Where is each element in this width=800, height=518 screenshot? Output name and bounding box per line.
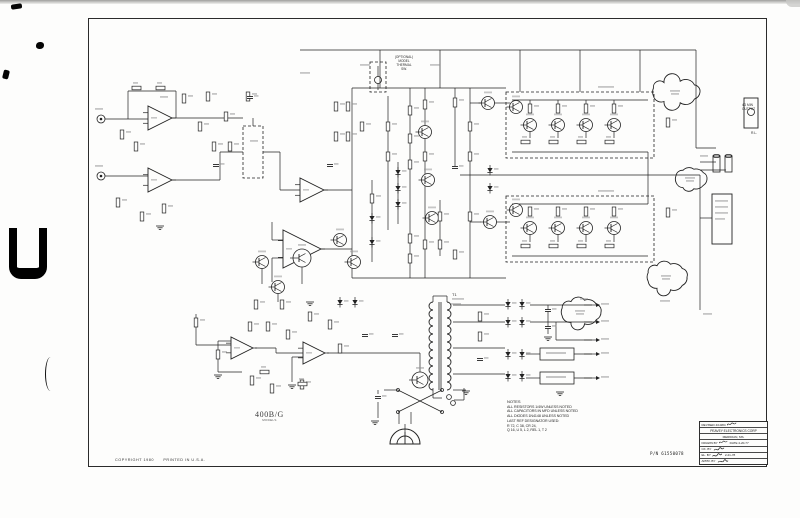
resistor-symbol <box>182 94 186 103</box>
label-smudge <box>550 136 555 138</box>
label-smudge <box>474 153 479 155</box>
label-smudge <box>306 352 312 354</box>
resistor-symbol <box>521 244 530 248</box>
label-smudge <box>601 320 609 322</box>
label-smudge <box>578 136 583 138</box>
label-smudge <box>486 211 494 213</box>
label-smudge <box>366 123 371 125</box>
resistor-symbol <box>468 212 472 221</box>
diode-symbol <box>395 186 400 191</box>
label-smudge <box>715 218 725 220</box>
resistor-symbol <box>423 100 427 109</box>
label-smudge <box>526 114 534 116</box>
resistor-symbol <box>408 160 412 169</box>
diode-symbol <box>487 168 492 173</box>
label-smudge <box>382 395 387 397</box>
resistor-symbol <box>216 350 220 359</box>
label-smudge <box>95 108 103 110</box>
resistor-symbol <box>370 194 374 203</box>
label-smudge <box>303 189 309 191</box>
resistor-symbol <box>334 132 338 141</box>
label-smudge <box>220 163 225 165</box>
label-smudge <box>494 186 499 188</box>
cloud-revision-mark <box>675 168 707 192</box>
diode-symbol <box>505 320 510 325</box>
resistor-symbol <box>386 122 390 131</box>
label-smudge <box>416 367 424 369</box>
optional-line: SW. <box>388 68 420 72</box>
label-smudge <box>672 209 677 211</box>
label-smudge <box>703 313 712 315</box>
label-smudge <box>212 93 217 95</box>
label-smudge <box>575 310 585 312</box>
diode-symbol <box>505 374 510 379</box>
label-smudge <box>392 123 397 125</box>
label-smudge <box>606 136 611 138</box>
diode-symbol <box>352 300 357 305</box>
label-smudge <box>685 177 695 179</box>
titleblock-checked-by: CK. BY <box>702 447 712 451</box>
label-smudge <box>299 378 304 380</box>
label-smudge <box>314 313 319 315</box>
label-smudge <box>160 96 168 98</box>
resistor-symbol <box>521 140 530 144</box>
label-smudge <box>494 168 499 170</box>
resistor-symbol <box>423 240 427 249</box>
label-smudge <box>254 95 259 97</box>
label-smudge <box>344 345 349 347</box>
diode-symbol <box>395 170 400 175</box>
label-smudge <box>552 325 557 327</box>
resistor-symbol <box>408 234 412 243</box>
label-smudge <box>421 121 429 123</box>
titleblock-drawn-date: DATE 4-20-77 <box>730 441 749 445</box>
label-smudge <box>376 216 381 218</box>
label-smudge <box>146 213 151 215</box>
label-smudge <box>459 165 464 167</box>
label-smudge <box>484 92 492 94</box>
label-smudge <box>444 213 449 215</box>
label-smudge <box>618 105 623 107</box>
label-smudge <box>261 366 266 368</box>
label-smudge <box>474 123 479 125</box>
label-smudge <box>562 208 567 210</box>
resistor-symbol <box>438 212 442 221</box>
label-smudge <box>661 275 671 277</box>
resistor-symbol <box>194 318 198 327</box>
label-smudge <box>122 199 127 201</box>
resistor-symbol <box>120 130 124 139</box>
resistor-symbol <box>584 207 588 216</box>
label-smudge <box>157 82 162 84</box>
label-smudge <box>402 170 407 172</box>
label-smudge <box>429 241 434 243</box>
resistor-symbol <box>556 207 560 216</box>
label-smudge <box>424 169 432 171</box>
diode-symbol <box>369 216 374 221</box>
optional-annotation: (OPTIONAL) MODEL THERMAL SW. <box>388 56 420 72</box>
diode-symbol <box>519 352 524 357</box>
label-smudge <box>414 235 419 237</box>
resistor-symbol <box>134 142 138 151</box>
resistor-symbol <box>438 240 442 249</box>
output-jack-label-line: OUTPUT <box>742 107 768 111</box>
label-smudge <box>429 101 434 103</box>
label-smudge <box>526 302 531 304</box>
title-block: REVISED 4/10/84 PEAVEY ELECTRONICS CORP … <box>699 421 768 465</box>
speaker-jack-symbol <box>713 156 720 172</box>
fuse-symbol <box>451 401 456 406</box>
label-smudge <box>414 107 419 109</box>
label-smudge <box>598 190 614 192</box>
label-smudge <box>522 136 527 138</box>
resistor-symbol <box>408 254 412 263</box>
titleblock-approved-row: APPR. BY <box>700 458 767 464</box>
resistor-symbol <box>453 250 457 259</box>
resistor-symbol <box>248 322 252 331</box>
label-smudge <box>344 300 349 302</box>
input-jack-symbol <box>100 175 103 178</box>
resistor-symbol <box>212 142 216 151</box>
label-smudge <box>715 200 728 202</box>
resistor-symbol <box>666 208 670 217</box>
label-smudge <box>550 240 555 242</box>
cloud-revision-mark <box>653 74 700 111</box>
transformer-coil <box>447 302 451 390</box>
diode-symbol <box>337 300 342 305</box>
resistor-symbol <box>528 104 532 113</box>
resistor-symbol <box>338 344 342 353</box>
resistor-symbol <box>132 86 141 90</box>
resistor-symbol <box>334 102 338 111</box>
voltage-arrow <box>596 338 600 342</box>
label-smudge <box>484 357 489 359</box>
label-smudge <box>512 352 517 354</box>
part-number: P/N 61550078 <box>650 451 684 456</box>
diode-symbol <box>395 202 400 207</box>
resistor-symbol <box>270 384 274 393</box>
label-smudge <box>350 251 358 253</box>
label-smudge <box>546 352 566 354</box>
dashed-enclosure <box>243 126 263 178</box>
label-smudge <box>452 298 464 300</box>
resistor-symbol <box>140 212 144 221</box>
resistor-symbol <box>162 204 166 213</box>
label-smudge <box>459 99 464 101</box>
label-smudge <box>484 313 489 315</box>
resistor-symbol <box>478 332 482 341</box>
label-smudge <box>670 90 680 92</box>
resistor-symbol <box>116 198 120 207</box>
label-smudge <box>484 333 489 335</box>
resistor-symbol <box>286 330 290 339</box>
resistor-symbol <box>612 104 616 113</box>
resistor-symbol <box>584 104 588 113</box>
label-smudge <box>151 117 157 119</box>
label-smudge <box>272 323 277 325</box>
label-smudge <box>582 114 590 116</box>
label-smudge <box>590 105 595 107</box>
resistor-symbol <box>408 134 412 143</box>
label-smudge <box>340 133 345 135</box>
label-smudge <box>188 95 193 97</box>
label-smudge <box>250 140 258 142</box>
resistor-symbol <box>156 86 165 90</box>
label-smudge <box>133 82 138 84</box>
label-smudge <box>601 376 609 378</box>
label-smudge <box>414 161 419 163</box>
label-smudge <box>204 123 209 125</box>
label-smudge <box>230 113 235 115</box>
voltage-arrow <box>596 320 600 324</box>
resistor-symbol <box>612 207 616 216</box>
label-smudge <box>512 320 517 322</box>
resistor-symbol <box>605 140 614 144</box>
label-smudge <box>601 303 609 305</box>
label-smudge <box>512 302 517 304</box>
resistor-symbol <box>260 370 269 374</box>
label-smudge <box>590 208 595 210</box>
model-label: 400B/G MODELS <box>255 410 284 422</box>
label-smudge <box>399 333 404 335</box>
resistor-symbol <box>577 244 586 248</box>
resistor-symbol <box>528 207 532 216</box>
resistor-symbol <box>298 382 307 386</box>
label-smudge <box>256 377 261 379</box>
label-smudge <box>610 217 618 219</box>
label-smudge <box>601 352 609 354</box>
label-smudge <box>392 153 397 155</box>
resistor-symbol <box>577 140 586 144</box>
resistor-symbol <box>308 312 312 321</box>
label-smudge <box>430 64 440 66</box>
titleblock-el-by: EL. BY <box>702 453 711 457</box>
label-smudge <box>218 143 223 145</box>
titleblock-revised: REVISED 4/10/84 <box>702 423 726 427</box>
label-smudge <box>151 179 157 181</box>
output-jack-label: 4Ω MIN OUTPUT <box>742 103 768 111</box>
label-smudge <box>526 320 531 322</box>
label-smudge <box>444 241 449 243</box>
resistor-symbol <box>346 132 350 141</box>
label-smudge <box>126 131 131 133</box>
voltage-arrow <box>596 376 600 380</box>
resistor-symbol <box>386 152 390 161</box>
label-smudge <box>429 153 434 155</box>
label-smudge <box>95 165 103 167</box>
label-smudge <box>252 93 257 95</box>
note-line: Q 16, U 5, L 2, REL 1, T 2 <box>507 428 593 433</box>
label-smudge <box>552 308 557 310</box>
label-smudge <box>598 86 614 88</box>
resistor-symbol <box>254 300 258 309</box>
speaker-jack-symbol <box>725 156 732 172</box>
load-label: R.L. <box>751 131 757 135</box>
label-smudge <box>360 64 370 66</box>
label-smudge <box>286 301 291 303</box>
label-smudge <box>276 385 281 387</box>
resistor-symbol <box>198 122 202 131</box>
resistor-symbol <box>468 122 472 131</box>
titleblock-drawn-by: DRAWN BY <box>702 441 718 445</box>
label-smudge <box>660 300 670 302</box>
label-smudge <box>700 155 708 157</box>
fuse-symbol <box>447 395 452 400</box>
label-smudge <box>352 103 357 105</box>
label-smudge <box>298 244 306 246</box>
label-smudge <box>671 93 679 95</box>
label-smudge <box>526 352 531 354</box>
voltage-arrow <box>596 352 600 356</box>
resistor-symbol <box>605 244 614 248</box>
diode-symbol <box>519 320 524 325</box>
resistor-symbol <box>468 152 472 161</box>
resistor-symbol <box>224 112 228 121</box>
label-smudge <box>222 351 227 353</box>
diode-symbol <box>519 374 524 379</box>
resistor-symbol <box>556 104 560 113</box>
label-smudge <box>582 217 590 219</box>
resistor-symbol <box>360 122 364 131</box>
label-smudge <box>234 143 239 145</box>
resistor-symbol <box>453 98 457 107</box>
label-smudge <box>451 303 461 305</box>
label-smudge <box>512 374 517 376</box>
resistor-symbol <box>228 142 232 151</box>
diode-symbol <box>519 302 524 307</box>
label-smudge <box>554 217 562 219</box>
resistor-symbol <box>346 102 350 111</box>
label-smudge <box>376 240 381 242</box>
label-smudge <box>352 133 357 135</box>
label-smudge <box>554 114 562 116</box>
label-smudge <box>576 313 584 315</box>
label-smudge <box>610 114 618 116</box>
label-smudge <box>234 347 240 349</box>
copyright-line: COPYRIGHT 1980 PRINTED IN U.S.A. <box>115 458 205 462</box>
label-smudge <box>359 300 364 302</box>
resistor-symbol <box>280 300 284 309</box>
resistor-symbol <box>478 312 482 321</box>
label-smudge <box>260 301 265 303</box>
label-smudge <box>340 103 345 105</box>
label-smudge <box>274 276 282 278</box>
diode-symbol <box>505 302 510 307</box>
resistor-symbol <box>423 152 427 161</box>
label-smudge <box>334 321 339 323</box>
input-jack-symbol <box>100 118 103 121</box>
label-smudge <box>562 105 567 107</box>
label-smudge <box>414 255 419 257</box>
signature-squiggle <box>717 459 729 464</box>
label-smudge <box>258 251 266 253</box>
label-smudge <box>606 240 611 242</box>
label-smudge <box>286 248 292 250</box>
label-smudge <box>534 105 539 107</box>
label-smudge <box>402 186 407 188</box>
resistor-symbol <box>666 118 670 127</box>
label-smudge <box>601 338 609 340</box>
label-smudge <box>578 240 583 242</box>
resistor-symbol <box>549 244 558 248</box>
label-smudge <box>414 135 419 137</box>
label-smudge <box>292 331 297 333</box>
label-smudge <box>334 163 339 165</box>
diode-symbol <box>487 186 492 191</box>
resistor-symbol <box>206 92 210 101</box>
label-smudge <box>474 213 479 215</box>
label-smudge <box>512 96 520 98</box>
label-smudge <box>526 217 534 219</box>
resistor-symbol <box>250 376 254 385</box>
label-smudge <box>522 240 527 242</box>
label-smudge <box>402 202 407 204</box>
label-smudge <box>376 195 381 197</box>
sheet-border <box>89 19 767 467</box>
label-smudge <box>580 298 588 300</box>
label-smudge <box>686 180 694 182</box>
notes-block: NOTES ALL RESISTORS 1/4W UNLESS NOTED AL… <box>507 400 593 433</box>
thermal-switch-symbol <box>375 77 382 84</box>
label-smudge <box>459 251 464 253</box>
label-smudge <box>662 278 670 280</box>
label-smudge <box>300 72 310 74</box>
scanned-schematic-page: (OPTIONAL) MODEL THERMAL SW. 4Ω MIN OUTP… <box>0 0 800 518</box>
resistor-symbol <box>328 320 332 329</box>
label-smudge <box>369 333 374 335</box>
label-smudge <box>200 319 205 321</box>
transformer-label: T1 <box>452 292 457 297</box>
diode-symbol <box>369 240 374 245</box>
diode-symbol <box>505 352 510 357</box>
label-smudge <box>672 119 677 121</box>
label-smudge <box>254 323 259 325</box>
label-smudge <box>618 208 623 210</box>
transformer-coil <box>429 302 433 390</box>
label-smudge <box>140 143 145 145</box>
resistor-symbol <box>408 106 412 115</box>
label-smudge <box>512 199 520 201</box>
label-smudge <box>715 206 728 208</box>
label-smudge <box>715 212 728 214</box>
label-smudge <box>428 207 436 209</box>
resistor-symbol <box>266 322 270 331</box>
label-smudge <box>546 376 566 378</box>
label-smudge <box>534 208 539 210</box>
schematic-drawing <box>0 0 800 518</box>
resistor-symbol <box>549 140 558 144</box>
label-smudge <box>336 229 344 231</box>
label-smudge <box>168 205 173 207</box>
titleblock-approved-by: APPR. BY <box>702 459 716 463</box>
label-smudge <box>526 374 531 376</box>
titleblock-el-date: 2-21-78 <box>725 453 735 457</box>
